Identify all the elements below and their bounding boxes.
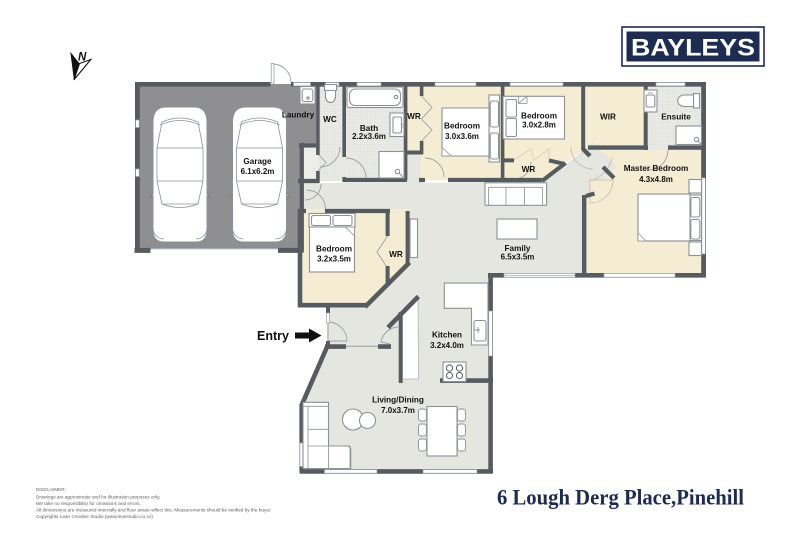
svg-text:We take no responsibility for: We take no responsibility for omissions …: [36, 501, 141, 506]
svg-text:BAYLEYS: BAYLEYS: [631, 35, 755, 62]
svg-text:N: N: [78, 52, 87, 64]
svg-text:Garage: Garage: [243, 157, 272, 166]
svg-text:7.0x3.7m: 7.0x3.7m: [381, 406, 415, 415]
svg-text:2.2x3.6m: 2.2x3.6m: [352, 132, 386, 141]
svg-text:6.5x3.5m: 6.5x3.5m: [501, 253, 535, 262]
svg-text:Master Bedroom: Master Bedroom: [624, 164, 689, 173]
svg-text:Drawings are approximate and f: Drawings are approximate and for illustr…: [36, 495, 160, 500]
svg-text:DISCLAIMER:: DISCLAIMER:: [36, 487, 66, 492]
svg-text:4.3x4.8m: 4.3x4.8m: [639, 175, 673, 184]
svg-text:Copyrights Lean Creative Studi: Copyrights Lean Creative Studio (www.leo…: [36, 514, 153, 519]
svg-text:3.0x2.8m: 3.0x2.8m: [522, 121, 556, 130]
svg-text:WR: WR: [407, 112, 421, 121]
svg-text:3.0x3.6m: 3.0x3.6m: [445, 132, 479, 141]
svg-text:Bedroom: Bedroom: [316, 245, 352, 254]
svg-text:WR: WR: [389, 250, 403, 259]
svg-text:6.1x6.2m: 6.1x6.2m: [241, 167, 275, 176]
svg-text:WIR: WIR: [600, 113, 616, 122]
svg-text:3.2x3.5m: 3.2x3.5m: [317, 255, 351, 264]
svg-text:WR: WR: [522, 165, 536, 174]
svg-text:3.2x4.0m: 3.2x4.0m: [430, 341, 464, 350]
svg-text:WC: WC: [323, 115, 337, 124]
svg-text:Bedroom: Bedroom: [444, 122, 480, 131]
svg-text:Laundry: Laundry: [282, 111, 315, 120]
svg-text:Ensuite: Ensuite: [661, 113, 691, 122]
svg-text:6 Lough Derg Place,Pinehill: 6 Lough Derg Place,Pinehill: [497, 485, 744, 510]
svg-text:Kitchen: Kitchen: [432, 331, 462, 340]
svg-text:All dimensions are measured in: All dimensions are measured internally a…: [36, 508, 272, 513]
svg-text:Entry: Entry: [257, 329, 289, 343]
svg-text:Living/Dining: Living/Dining: [372, 396, 424, 405]
svg-text:Bedroom: Bedroom: [521, 111, 557, 120]
